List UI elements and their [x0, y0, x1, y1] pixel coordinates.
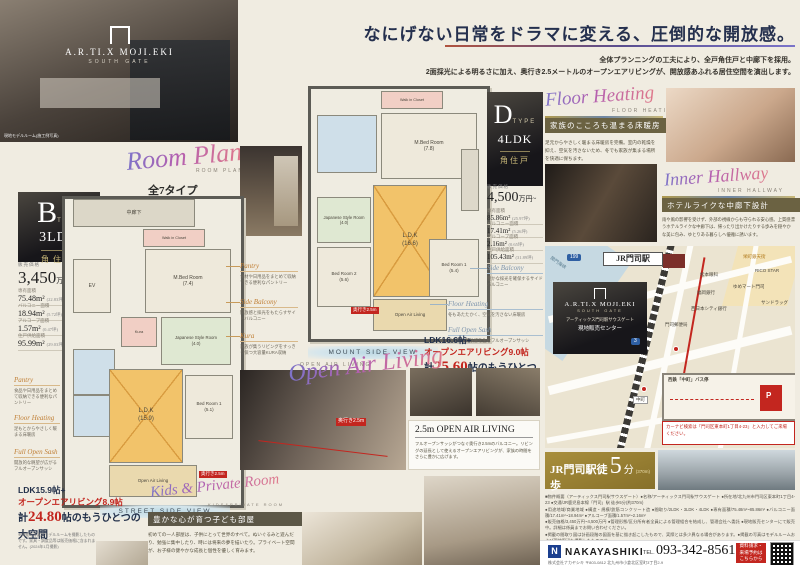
access-dist: (370m): [636, 469, 650, 474]
stat-line2: オープンエアリビング8.9帖: [18, 497, 123, 507]
annotation-desc: 開放感と採光をもたらすサイドバルコニー: [240, 310, 298, 322]
kitchen-pantry-photo: [240, 146, 302, 236]
carnav-note: カーナビ検索は「門司区東本町1丁目4-23」と入力してご来場ください。: [662, 421, 795, 445]
annotation-sidebalcony-mid: Side Balcony 開放感と採光をもたらすサイドバルコニー: [240, 298, 298, 322]
plan-b-ev: EV: [73, 259, 111, 313]
annotation-sidebalcony-d: Side Balcony 豊かな採光を確保するサイドバルコニー: [487, 264, 543, 288]
spec-tsubo: (31.89坪): [516, 255, 534, 260]
plan-b-kura: Kura: [121, 317, 157, 347]
company-logo-icon: N: [548, 545, 561, 558]
inset-route-dashes: [670, 399, 754, 400]
annotation-title: Pantry: [240, 262, 298, 272]
plan-d-servicebalcony: [461, 149, 479, 211]
inset-p-mark: P: [766, 391, 771, 400]
tel-number: 093-342-8561: [656, 543, 735, 559]
hero-counter: [40, 78, 160, 108]
flyer-page: A.R.TI.X MOJI.EKI SOUTH GATE 現地モデルルーム(施工…: [0, 0, 800, 565]
stat-sum-head: 計: [18, 513, 28, 524]
annotation-desc: 開放的な眺望が広がるフルオープンサッシ: [14, 460, 60, 472]
map-label-mart: ゆめマート門司: [733, 284, 765, 290]
bottom-photo-1: [96, 541, 148, 565]
access-title: JR門司駅徒歩: [550, 461, 608, 493]
map-label-rico: RICO STAR: [755, 268, 779, 273]
spec-value: 105.43m²: [487, 253, 514, 261]
annotation-floorheating-d: Floor Heating 冬もあたたかく、空気を汚さない床暖房: [448, 300, 543, 318]
map-label-drug: サンドラッグ: [761, 300, 788, 306]
map-label-arcade: 栄町銀天街: [743, 254, 766, 260]
map-logo-line1: アーティックス門司駅サウスゲート: [553, 317, 647, 323]
annotation-desc: 食材や日用品をまとめて収納できる便利なパントリー: [240, 274, 298, 286]
spec-value: 95.99m²: [18, 339, 45, 348]
type-d-corner: 角住戸: [500, 151, 530, 166]
plan-b-corridor: 中廊下: [73, 199, 195, 227]
inner-hallway-heading: ホテルライクな中廊下設計: [662, 198, 800, 212]
inner-hallway-caps: INNER HALLWAY: [718, 188, 784, 194]
map-logo-name: A.R.TI.X MOJI.EKI: [553, 301, 647, 308]
open-air-box-title: 2.5m OPEN AIR LIVING: [415, 425, 533, 438]
legal-line: ●販売価格/3,450万円~4,500万円 ●管理形態/区分所有者全員による管理…: [545, 519, 795, 532]
type-d-letter: D: [494, 100, 513, 129]
footer-bar: N NAKAYASHIKI TEL. 093-342-8561 資料請求・ 来場…: [540, 540, 800, 565]
map-logo-sub: SOUTH GATE: [553, 308, 647, 313]
tel-label: TEL.: [643, 550, 655, 556]
main-headline: なにげない日常をドラマに変える、圧倒的な開放感。: [360, 20, 795, 45]
inner-hallway-text: 雨や風の影響を受けず、外部の視線からも守られる安心感。上質感漂うホテルライクな中…: [662, 216, 795, 238]
inset-title: 西鉄「中町」バス停: [668, 377, 709, 383]
map-inset: 西鉄「中町」バス停 P: [662, 373, 795, 421]
floor-heating-heading-text: 家族のこころも温まる床暖房: [550, 120, 661, 131]
family-photo: [666, 88, 795, 162]
spec-tsubo: (5.72坪): [47, 312, 62, 317]
map-label-eye: 松本眼科: [700, 272, 718, 278]
floor-heating-heading: 家族のこころも温まる床暖房: [545, 118, 668, 133]
annotation-title: Pantry: [14, 376, 60, 386]
plan-b-mbed: M.Bed Room (7.4): [145, 249, 231, 313]
gate-mark-icon: [594, 288, 606, 299]
annotation-desc: 豊かな採光を確保するサイドバルコニー: [487, 276, 543, 288]
annotation-title: Side Balcony: [487, 264, 543, 274]
gate-mark-icon: [110, 26, 130, 44]
stat-line1: LDK15.9帖+: [18, 484, 148, 496]
plan-d-japanese: Japanese Style Room (4.0): [317, 197, 371, 243]
living-room-photo: A.R.TI.X MOJI.EKI SOUTH GATE 現地モデルルーム(施工…: [0, 0, 238, 142]
annotation-title: Side Balcony: [240, 298, 298, 308]
annotation-title: Floor Heating: [14, 414, 60, 424]
kids-text: 初めての一人部屋は、子供にとって世界のすべて。ぬいぐるみと遊んだり、勉強に集中し…: [148, 531, 300, 554]
route-199-shield: 199: [567, 254, 581, 261]
kids-photo: [302, 512, 422, 565]
depth-arrow-line: [258, 440, 387, 457]
leader-line: [470, 268, 487, 269]
plan-b-ldk: L.D.K (15.9): [109, 369, 183, 463]
map-label-post: 門司郵便局: [665, 322, 688, 328]
annotation-desc: 足もとからやさしく暖まる床暖房: [14, 426, 60, 438]
map-label-bank2: 福岡銀行: [697, 290, 715, 296]
company-brand: NAKAYASHIKI: [565, 547, 644, 558]
spec-tsubo: (0.47坪): [43, 327, 58, 332]
type-d-price-unit: 万円~: [519, 195, 537, 203]
plan-d-bed2: Bed Room 2 (5.6): [317, 247, 371, 307]
kids-heading-text: 豊かな心が育つ子ども部屋: [153, 514, 255, 525]
headline-underline: [445, 45, 795, 47]
plan-d-bath: [317, 115, 377, 173]
type-d-box: DTYPE 4LDK 角住戸: [487, 92, 543, 186]
map-label-nakamachi: 中町: [633, 396, 648, 404]
bedroom-photo: [424, 476, 540, 565]
leader-line: [226, 302, 240, 303]
headline-sub1: 全体プランニングの工夫により、全戸角住戸と中廊下を採用。: [370, 55, 795, 65]
depth-arrow-tag: 奥行き2.5m: [336, 418, 366, 426]
annotation-desc: 家族が集うリビングをすっきり保つ大容量KURA収納: [240, 344, 298, 356]
map-label-bank1: 西日本シティ銀行: [691, 306, 727, 312]
company-address: 株式会社ナカヤシキ 〒803-0812 北九州市小倉北区室町3丁目2-9: [548, 560, 663, 565]
hallway-photo: [545, 164, 657, 242]
hero-caption: 現地モデルルーム(施工例写真): [4, 133, 59, 139]
plan-b-japanese: Japanese Style Room (4.0): [161, 317, 231, 365]
map-logo-line2: 現地販売センター: [553, 324, 647, 332]
access-map: 関門海峡 JR門司駅 A.R.TI.X MOJI.EKI SOUTH GATE …: [545, 246, 795, 448]
bus-stop-dot: [641, 386, 647, 392]
hero-logo-sub: SOUTH GATE: [62, 59, 177, 65]
hero-logo: A.R.TI.X MOJI.EKI: [62, 47, 177, 57]
annotation-kura: Kura 家族が集うリビングをすっきり保つ大容量KURA収納: [240, 332, 298, 356]
leader-line: [430, 304, 448, 305]
legal-line: ■物件概要〈アーティックス門司駅サウスゲート〉●名称/アーティックス門司駅サウス…: [545, 494, 795, 507]
inner-hallway-heading-text: ホテルライクな中廊下設計: [667, 200, 769, 211]
type-b-letter: B: [37, 196, 57, 229]
type-d-layout: 4LDK: [487, 132, 543, 147]
annotation-title: Kura: [240, 332, 298, 342]
stat-line1: LDK16.6帖+: [424, 334, 544, 346]
plan-b-bed1: Bed Room 1 (5.1): [185, 375, 233, 439]
qr-code: [770, 542, 794, 565]
route-3-shield: 3: [631, 338, 640, 345]
floor-heating-text: 足元からやさしく暖まる床暖房を完備。室内の乾燥を抑え、空気を汚さないため、冬でも…: [545, 139, 659, 162]
headline-sub2: 2面採光による明るさに加え、奥行き2.5メートルのオープンエアリビングが、開放感…: [340, 67, 795, 77]
annotation-title: Full Open Sash: [14, 448, 60, 458]
legal-line: ●用途地域/商業地域 ●構造・規模/鉄筋コンクリート造 ●間取り/2LDK・3L…: [545, 507, 795, 520]
plan-d-depth-tag: 奥行き2.5m: [351, 307, 379, 314]
open-air-box-text: フルオープンサッシがつなぐ奥行き2.5mのバルコニー。リビングの延長として使える…: [415, 441, 533, 461]
photo-disclaimer: ※掲載の写真はモデルルームを撮影したものです。家具・調度品等は販売価格に含まれま…: [18, 532, 96, 550]
room-plan-caps: ROOM PLAN: [196, 168, 244, 174]
open-air-photo-2: [410, 368, 472, 416]
bus-stop-dot: [673, 346, 679, 352]
type-b-price: 3,450: [18, 268, 56, 287]
kids-caps: KIDS&PRIVATE ROOM: [208, 502, 284, 507]
spec-value: 18.94m²: [18, 309, 45, 318]
annotation-desc: 冬もあたたかく、空気を汚さない床暖房: [448, 312, 543, 318]
annotation-pantry-d: Pantry 食材や日用品をまとめて収納できる便利なパントリー: [240, 262, 298, 286]
open-air-box: 2.5m OPEN AIR LIVING フルオープンサッシがつなぐ奥行き2.5…: [408, 420, 540, 470]
annotation-pantry-b: Pantry 食品や日用品をまとめて収納できる便利なパントリー: [14, 376, 60, 407]
annotation-desc: 食品や日用品をまとめて収納できる便利なパントリー: [14, 388, 60, 407]
inner-hallway-script: Inner Hallway: [663, 162, 769, 190]
access-box: JR門司駅徒歩 5 分 (370m) JR「門司駅」→JR「小倉駅」 所要時間:…: [545, 452, 655, 489]
map-station-building: [663, 254, 685, 268]
company-logo-letter: N: [551, 546, 558, 556]
annotation-fullopensash-b: Full Open Sash 開放的な眺望が広がるフルオープンサッシ: [14, 448, 60, 472]
open-air-photo-main: 奥行き2.5m: [240, 370, 406, 470]
plan-b-wic: Walk in Closet: [143, 229, 205, 247]
access-num: 5: [610, 455, 622, 477]
leader-line: [226, 336, 240, 337]
open-air-caps: OPEN AIR LIVING: [300, 362, 371, 368]
annotation-floorheating-b: Floor Heating 足もとからやさしく暖まる床暖房: [14, 414, 60, 438]
kids-heading: 豊かな心が育つ子ども部屋: [148, 512, 303, 526]
cta-reservation: 資料請求・ 来場予約は こちらから: [736, 543, 766, 563]
pantry-shelf: [274, 156, 298, 226]
carnav-note-text: カーナビ検索は「門司区東本町1丁目4-23」と入力してご来場ください。: [666, 424, 791, 437]
map-station-label: JR門司駅: [603, 252, 663, 266]
spec-value: 1.57m²: [18, 324, 41, 333]
annotation-title: Floor Heating: [448, 300, 543, 310]
stat-sum-num: 24.80: [28, 509, 62, 525]
type-d-word: TYPE: [513, 119, 537, 125]
station-photo: [658, 450, 795, 490]
access-unit: 分: [624, 461, 634, 476]
leader-line: [226, 266, 240, 267]
floor-plan-b: 中廊下 Walk in Closet EV M.Bed Room (7.4) K…: [62, 196, 244, 508]
spec-value: 75.48m²: [18, 294, 45, 303]
type-d-price: 4,500: [487, 190, 519, 205]
open-air-photo-3: [476, 368, 540, 416]
plan-d-wic: Walk in Closet: [381, 91, 443, 109]
